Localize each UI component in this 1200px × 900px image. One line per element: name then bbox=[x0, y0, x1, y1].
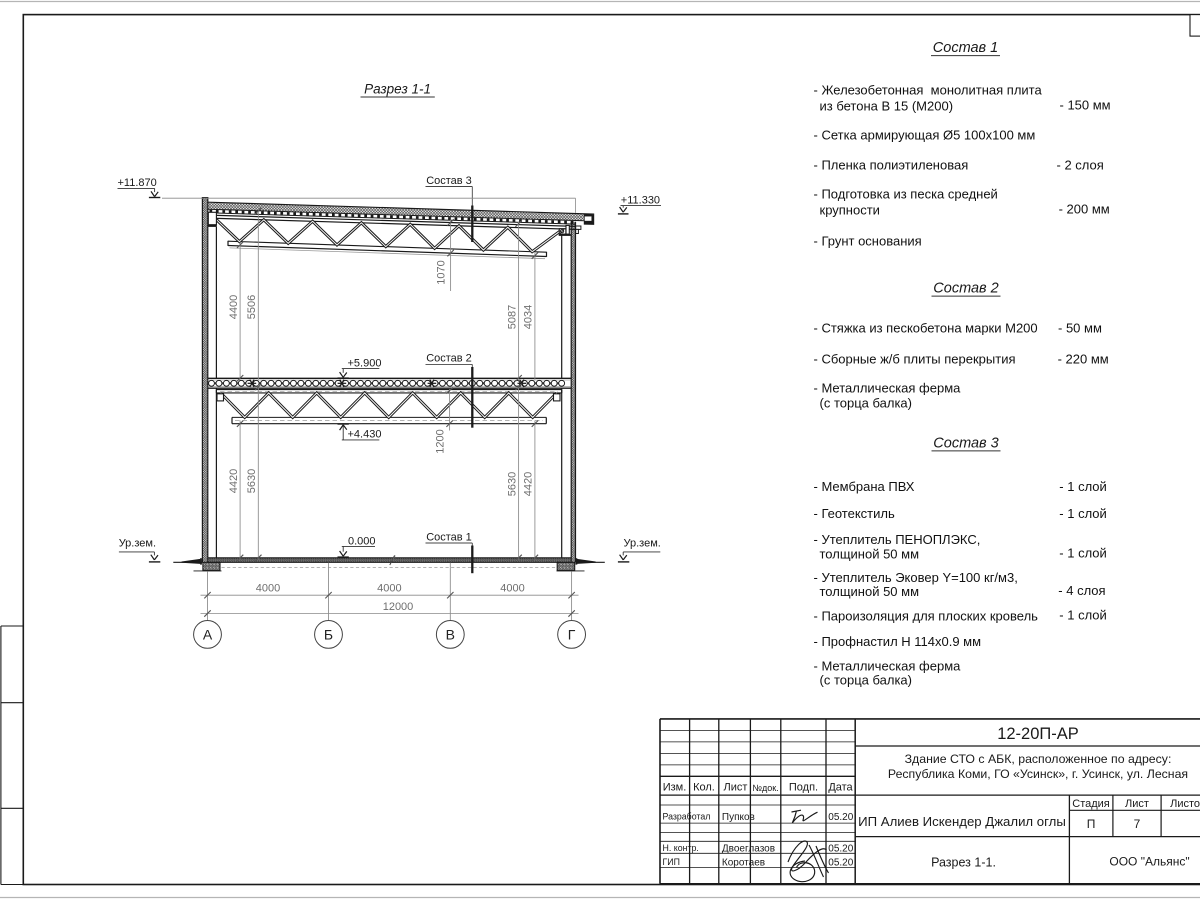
svg-text:4420: 4420 bbox=[523, 472, 535, 496]
svg-text:Состав 3: Состав 3 bbox=[933, 435, 998, 451]
svg-text:4000: 4000 bbox=[500, 582, 524, 594]
svg-text:Состав 1: Состав 1 bbox=[426, 531, 472, 543]
svg-text:- Стяжка из пескобетона марки: - Стяжка из пескобетона марки М200 bbox=[814, 320, 1038, 335]
svg-text:- 1 слой: - 1 слой bbox=[1059, 608, 1107, 623]
svg-text:- Геотекстиль: - Геотекстиль bbox=[814, 506, 895, 521]
svg-text:4420: 4420 bbox=[228, 469, 240, 493]
svg-text:(с торца балка): (с торца балка) bbox=[820, 672, 913, 687]
svg-text:5506: 5506 bbox=[246, 295, 258, 319]
svg-text:толщиной 50 мм: толщиной 50 мм bbox=[820, 546, 920, 561]
svg-text:П: П bbox=[1087, 817, 1096, 831]
svg-text:- Пленка полиэтиленовая: - Пленка полиэтиленовая bbox=[814, 157, 969, 172]
svg-text:Лист: Лист bbox=[724, 781, 748, 793]
svg-text:ГИП: ГИП bbox=[663, 857, 680, 867]
svg-text:- 1 слой: - 1 слой bbox=[1059, 506, 1107, 521]
svg-text:Изм.: Изм. bbox=[663, 782, 687, 794]
svg-text:Разрез 1-1.: Разрез 1-1. bbox=[931, 856, 996, 870]
svg-text:1070: 1070 bbox=[435, 260, 447, 284]
svg-text:В: В bbox=[446, 626, 455, 642]
svg-text:Ур.зем.: Ур.зем. bbox=[119, 537, 156, 549]
svg-text:крупности: крупности bbox=[820, 202, 880, 217]
svg-text:Республика Коми, ГО «Усинск»,: Республика Коми, ГО «Усинск», г. Усинск,… bbox=[888, 767, 1188, 781]
svg-text:12-20П-АР: 12-20П-АР bbox=[997, 725, 1079, 743]
svg-text:4034: 4034 bbox=[523, 305, 535, 329]
svg-text:Кол.: Кол. bbox=[693, 782, 715, 794]
svg-text:Коротаев: Коротаев bbox=[722, 858, 765, 869]
svg-text:Листов: Листов bbox=[1170, 798, 1200, 810]
svg-text:Подп.: Подп. bbox=[789, 781, 818, 793]
svg-text:А: А bbox=[203, 626, 213, 642]
svg-text:Здание СТО с АБК, расположенно: Здание СТО с АБК, расположенное по адрес… bbox=[905, 752, 1172, 766]
svg-text:4000: 4000 bbox=[256, 582, 280, 594]
svg-text:Состав 1: Состав 1 bbox=[933, 40, 998, 56]
svg-text:- 1 слой: - 1 слой bbox=[1059, 479, 1107, 494]
svg-text:- Металлическая ферма: - Металлическая ферма bbox=[814, 381, 962, 396]
svg-text:- Мембрана ПВХ: - Мембрана ПВХ bbox=[814, 479, 915, 494]
svg-text:- Сетка армирующая Ø5 100х100: - Сетка армирующая Ø5 100х100 мм bbox=[814, 127, 1036, 142]
svg-text:Дата: Дата bbox=[828, 781, 853, 793]
svg-text:- Утеплитель Эковер Y=100 кг/м: - Утеплитель Эковер Y=100 кг/м3, bbox=[814, 570, 1018, 585]
svg-text:- Профнастил Н 114х0.9 мм: - Профнастил Н 114х0.9 мм bbox=[814, 634, 982, 649]
svg-text:- 50 мм: - 50 мм bbox=[1058, 320, 1102, 335]
svg-text:- Железобетонная монолитная п: - Железобетонная монолитная плита bbox=[814, 82, 1043, 97]
svg-text:5630: 5630 bbox=[506, 472, 518, 496]
svg-text:5087: 5087 bbox=[506, 305, 518, 329]
svg-text:Лист: Лист bbox=[1125, 798, 1149, 810]
svg-text:- Грунт основания: - Грунт основания bbox=[814, 233, 922, 248]
svg-text:+5.900: +5.900 bbox=[348, 357, 382, 369]
svg-text:Н. контр.: Н. контр. bbox=[663, 843, 699, 853]
svg-text:12000: 12000 bbox=[383, 601, 414, 613]
svg-text:- 4 слоя: - 4 слоя bbox=[1058, 583, 1105, 598]
svg-text:Двоеглазов: Двоеглазов bbox=[722, 844, 775, 855]
svg-text:4400: 4400 bbox=[228, 295, 240, 319]
svg-text:ООО "Альянс": ООО "Альянс" bbox=[1109, 855, 1189, 869]
svg-text:5630: 5630 bbox=[246, 469, 258, 493]
svg-text:- 200 мм: - 200 мм bbox=[1059, 202, 1110, 217]
svg-text:Состав 2: Состав 2 bbox=[933, 281, 998, 297]
svg-text:Разработал: Разработал bbox=[663, 812, 711, 822]
svg-text:7: 7 bbox=[1134, 817, 1141, 831]
svg-text:0.000: 0.000 bbox=[348, 535, 376, 547]
svg-text:ИП Алиев Искендер Джалил оглы: ИП Алиев Искендер Джалил оглы bbox=[858, 814, 1066, 829]
svg-text:+4.430: +4.430 bbox=[348, 429, 382, 441]
svg-text:Ур.зем.: Ур.зем. bbox=[624, 537, 661, 549]
svg-text:4000: 4000 bbox=[377, 582, 401, 594]
svg-text:- 2 слоя: - 2 слоя bbox=[1057, 157, 1104, 172]
svg-text:Состав 2: Состав 2 bbox=[426, 353, 472, 365]
svg-text:- Сборные ж/б плиты перекрытия: - Сборные ж/б плиты перекрытия bbox=[814, 352, 1016, 367]
svg-text:из бетона В 15 (М200): из бетона В 15 (М200) bbox=[820, 98, 954, 113]
svg-text:- 150 мм: - 150 мм bbox=[1060, 97, 1111, 112]
svg-text:1200: 1200 bbox=[434, 429, 446, 453]
svg-text:Б: Б bbox=[324, 626, 333, 642]
svg-text:- 1 слой: - 1 слой bbox=[1059, 545, 1107, 560]
svg-text:толщиной 50 мм: толщиной 50 мм bbox=[820, 584, 920, 599]
svg-text:- Подготовка из песка средней: - Подготовка из песка средней bbox=[814, 186, 998, 201]
svg-text:+11.870: +11.870 bbox=[118, 177, 157, 189]
svg-text:- Пароизоляция для плоских кро: - Пароизоляция для плоских кровель bbox=[814, 609, 1039, 624]
svg-text:- 220 мм: - 220 мм bbox=[1058, 352, 1109, 367]
svg-text:Состав 3: Состав 3 bbox=[426, 175, 472, 187]
svg-text:Пупков: Пупков bbox=[722, 812, 755, 823]
svg-text:№док.: №док. bbox=[752, 783, 778, 793]
svg-text:Разрез 1-1: Разрез 1-1 bbox=[364, 82, 431, 97]
svg-text:Г: Г bbox=[568, 626, 576, 642]
svg-text:05.20: 05.20 bbox=[828, 858, 853, 869]
svg-text:Стадия: Стадия bbox=[1072, 798, 1110, 810]
svg-text:05.20: 05.20 bbox=[828, 844, 853, 855]
svg-text:+11.330: +11.330 bbox=[621, 194, 660, 206]
svg-text:(с торца балка): (с торца балка) bbox=[820, 396, 913, 411]
svg-text:- Утеплитель ПЕНОПЛЭКС,: - Утеплитель ПЕНОПЛЭКС, bbox=[814, 532, 981, 547]
svg-text:- Металлическая ферма: - Металлическая ферма bbox=[814, 658, 962, 673]
svg-text:05.20: 05.20 bbox=[828, 812, 853, 823]
